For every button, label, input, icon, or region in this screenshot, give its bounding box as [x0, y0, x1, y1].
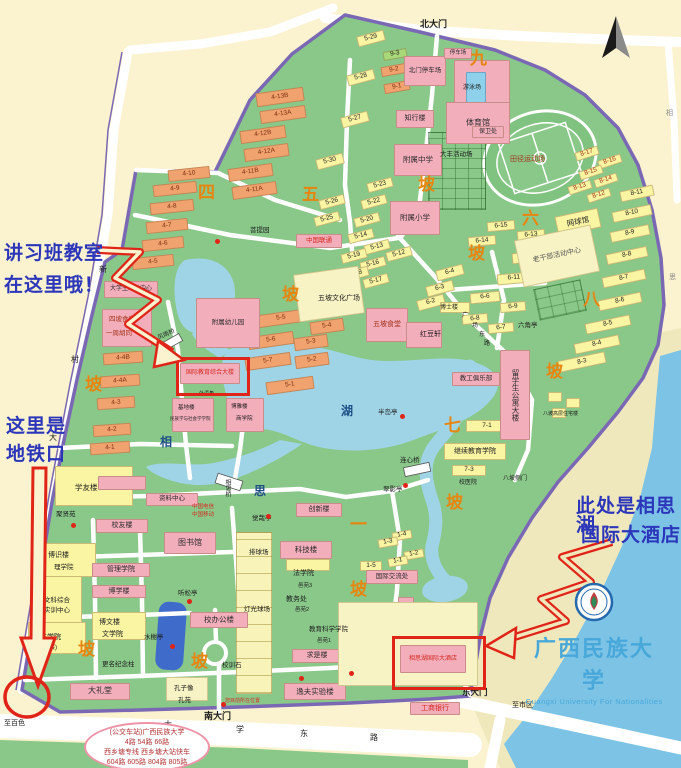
- map-label-灯光球场: 灯光球场: [244, 607, 270, 614]
- building-北门停车场: 北门停车场: [404, 56, 446, 86]
- area-numeral-八: 八: [583, 291, 600, 308]
- building-校友楼: 校友楼: [96, 519, 148, 533]
- map-label-排球场: 排球场: [249, 550, 269, 557]
- building-附属中学: 附属中学: [394, 144, 442, 176]
- map-label-大丰活动场: 大丰活动场: [440, 152, 473, 159]
- building-校办公楼: 校办公楼: [190, 612, 248, 628]
- area-numeral-坡: 坡: [418, 176, 435, 193]
- area-numeral-一: 一: [350, 516, 367, 533]
- map-label-红豆轩: 红豆轩: [420, 331, 441, 338]
- building-留学生公寓大楼: 留学生公寓大楼: [500, 350, 530, 440]
- bus-stop-info: (公交车站)广西民族大学 4路 54路 66路 西乡塘专线 西乡塘大站快车 60…: [84, 722, 210, 768]
- map-label-软件学院: 软件学院: [33, 634, 61, 641]
- map-label-八坡侧门: 八坡侧门: [503, 476, 527, 482]
- area-numeral-七: 七: [444, 417, 461, 434]
- map-label-道: 道: [33, 500, 41, 508]
- workshop-annotation-line1: 讲习班教室: [4, 244, 104, 263]
- hotel-annotation-line2: 国际大酒店: [581, 526, 681, 545]
- building-博学楼: 博学楼: [92, 585, 146, 598]
- map-label-北大门: 北大门: [420, 20, 447, 29]
- campus-map: 4-13B4-13A4-12B4-12A4-11B4-11A4-104-94-8…: [0, 0, 681, 768]
- building-继续教育学院: 继续教育学院: [444, 443, 506, 460]
- map-label-法学院: 法学院: [293, 570, 314, 577]
- map-label-中国移动: 中国移动: [192, 513, 214, 519]
- building-工商银行: 工商银行: [410, 702, 460, 715]
- map-label-邑苑2: 邑苑2: [295, 608, 309, 614]
- area-numeral-四: 四: [198, 184, 215, 201]
- building: [44, 543, 96, 577]
- map-label-中国电信: 中国电信: [192, 505, 214, 511]
- building: [98, 476, 146, 490]
- map-label-菩提园: 菩提园: [250, 228, 270, 235]
- map-label-校训石: 校训石: [222, 663, 242, 670]
- map-label-实训中心: 实训中心: [44, 608, 70, 615]
- building: [102, 309, 152, 347]
- map-label-一周胡同: 一周胡同: [106, 331, 132, 338]
- map-label-博雅楼: 博雅楼: [231, 405, 248, 411]
- map-label-翠影亭: 翠影亭: [383, 487, 403, 494]
- university-name-cn: 广西民族大学: [524, 631, 664, 695]
- highlight-box-classroom: [176, 357, 250, 396]
- building-管理学院: 管理学院: [92, 563, 150, 577]
- map-label-相思桥: 相思桥: [224, 479, 230, 497]
- map-label-南大门: 南大门: [204, 712, 231, 721]
- bus-stop-line4: 604路 605路 804路 805路: [86, 758, 208, 768]
- building-教工俱乐部: 教工俱乐部: [452, 372, 500, 386]
- bus-stop-line1: (公交车站)广西民族大学: [86, 728, 208, 738]
- building-附属幼儿园: 附属幼儿园: [196, 298, 260, 348]
- map-label-水榭亭: 水榭亭: [144, 635, 164, 642]
- map-label-路: 路: [484, 341, 490, 347]
- map-label-相: 相: [666, 110, 673, 117]
- building-求是楼: 求是楼: [292, 649, 342, 663]
- map-label-商学院: 商学院: [236, 417, 253, 423]
- poi-dot: [221, 702, 226, 707]
- map-label-四坡食堂: 四坡食堂: [109, 317, 135, 324]
- map-label-教务处: 教务处: [286, 596, 307, 603]
- map-label-教育科学学院: 教育科学学院: [309, 627, 348, 634]
- building-停车场: 停车场: [444, 48, 472, 59]
- map-label-半岛亭: 半岛亭: [378, 410, 398, 417]
- area-numeral-坡: 坡: [446, 494, 463, 511]
- map-label-东: 东: [300, 730, 308, 738]
- area-numeral-坡: 坡: [85, 376, 102, 393]
- map-label-聚贤苑: 聚贤苑: [56, 512, 76, 519]
- map-label-基地楼: 基地楼: [178, 406, 195, 412]
- map-label-博识楼: 博识楼: [48, 552, 69, 559]
- map-label-理学院: 理学院: [54, 565, 74, 572]
- map-label-新: 新: [99, 266, 107, 274]
- map-label-听松亭: 听松亭: [178, 591, 198, 598]
- building-附属小学: 附属小学: [390, 201, 440, 235]
- bus-stop-line2: 4路 54路 66路: [86, 738, 208, 748]
- poi-dot: [187, 599, 192, 604]
- map-label-路: 路: [370, 734, 378, 742]
- building-保卫处: 保卫处: [472, 126, 504, 138]
- map-label-邑苑1: 邑苑1: [317, 639, 331, 645]
- map-label-学友楼: 学友楼: [75, 484, 98, 492]
- map-label-学: 学: [236, 726, 244, 734]
- building-资料中心: 资料中心: [146, 493, 198, 506]
- area-numeral-坡: 坡: [282, 286, 299, 303]
- map-label-相: 相: [160, 436, 172, 448]
- map-label-广: 广: [462, 313, 468, 319]
- area-numeral-九: 九: [470, 50, 487, 67]
- map-label-校医院: 校医院: [459, 480, 477, 486]
- building: [548, 392, 562, 402]
- workshop-annotation-line2: 在这里哦！: [4, 276, 104, 295]
- map-label-思: 思: [669, 274, 676, 281]
- poi-dot: [349, 671, 354, 676]
- building-图书馆: 图书馆: [164, 532, 216, 554]
- area-numeral-坡: 坡: [78, 641, 95, 658]
- poi-dot: [266, 514, 271, 519]
- map-label-您目前所在位置: 您目前所在位置: [225, 699, 260, 704]
- map-label-博士楼: 博士楼: [440, 305, 458, 311]
- map-label-博文楼: 博文楼: [99, 619, 120, 626]
- poi-dot: [170, 644, 175, 649]
- map-label-民族学与社会学学院: 民族学与社会学学院: [170, 417, 211, 422]
- area-numeral-坡: 坡: [350, 581, 367, 598]
- map-label-八坡高层住宅楼: 八坡高层住宅楼: [543, 412, 578, 417]
- map-label-连心桥: 连心桥: [400, 458, 420, 465]
- map-label-孔子像: 孔子像: [174, 686, 194, 693]
- map-label-(博达楼): (博达楼): [35, 645, 57, 651]
- building-五坡食堂: 五坡食堂: [366, 308, 408, 342]
- university-emblem-icon: [574, 582, 614, 622]
- building-创新楼: 创新楼: [296, 503, 342, 517]
- building-大礼堂: 大礼堂: [70, 683, 130, 700]
- map-label-湖: 湖: [341, 405, 353, 417]
- map-label-邑苑3: 邑苑3: [298, 584, 312, 590]
- map-label-游泳场: 游泳场: [463, 85, 481, 91]
- map-label-孔苑: 孔苑: [178, 698, 191, 705]
- building-7-3: 7-3: [452, 465, 486, 476]
- poi-dot: [299, 676, 304, 681]
- poi-dot: [71, 523, 76, 528]
- building-知行楼: 知行楼: [396, 110, 434, 128]
- building-大学生活动中心: 大学生活动中心: [104, 281, 158, 298]
- building-逸夫实验楼: 逸夫实验楼: [284, 683, 346, 700]
- building: [293, 266, 365, 323]
- university-logo-block: 广西民族大学 Guangxi University For Nationalit…: [524, 582, 664, 706]
- map-label-文科综合: 文科综合: [44, 598, 70, 605]
- building: [566, 398, 580, 408]
- map-label-五坡文化广场: 五坡文化广场: [318, 295, 360, 302]
- map-label-场: 场: [472, 323, 478, 329]
- building-国际交流处: 国际交流处: [366, 570, 418, 584]
- bus-stop-line3: 西乡塘专线 西乡塘大站快车: [86, 748, 208, 758]
- map-label-文学院: 文学院: [102, 631, 123, 638]
- map-label-思: 思: [254, 485, 266, 497]
- map-label-村: 村: [71, 356, 79, 364]
- poi-dot: [400, 414, 405, 419]
- poi-dot: [403, 483, 408, 488]
- area-numeral-坡: 坡: [191, 653, 208, 670]
- area-numeral-五: 五: [302, 186, 319, 203]
- map-label-六角亭: 六角亭: [518, 323, 538, 330]
- building-中国联通: 中国联通: [296, 234, 342, 248]
- map-label-东: 东: [479, 332, 485, 338]
- map-label-更名纪念柱: 更名纪念柱: [102, 662, 135, 669]
- area-numeral-坡: 坡: [468, 245, 485, 262]
- building-科技楼: 科技楼: [280, 541, 332, 559]
- metro-annotation-line2: 地铁口: [6, 445, 66, 464]
- poi-dot: [215, 239, 220, 244]
- area-numeral-六: 六: [522, 210, 539, 227]
- area-numeral-坡: 坡: [546, 363, 563, 380]
- university-name-en: Guangxi University For Nationalities: [524, 697, 664, 706]
- highlight-box-hotel: [392, 636, 486, 690]
- map-label-田径运动场: 田径运动场: [510, 156, 545, 163]
- building: [172, 398, 214, 432]
- metro-annotation-line1: 这里是: [6, 417, 66, 436]
- map-label-至百色: 至百色: [4, 720, 25, 727]
